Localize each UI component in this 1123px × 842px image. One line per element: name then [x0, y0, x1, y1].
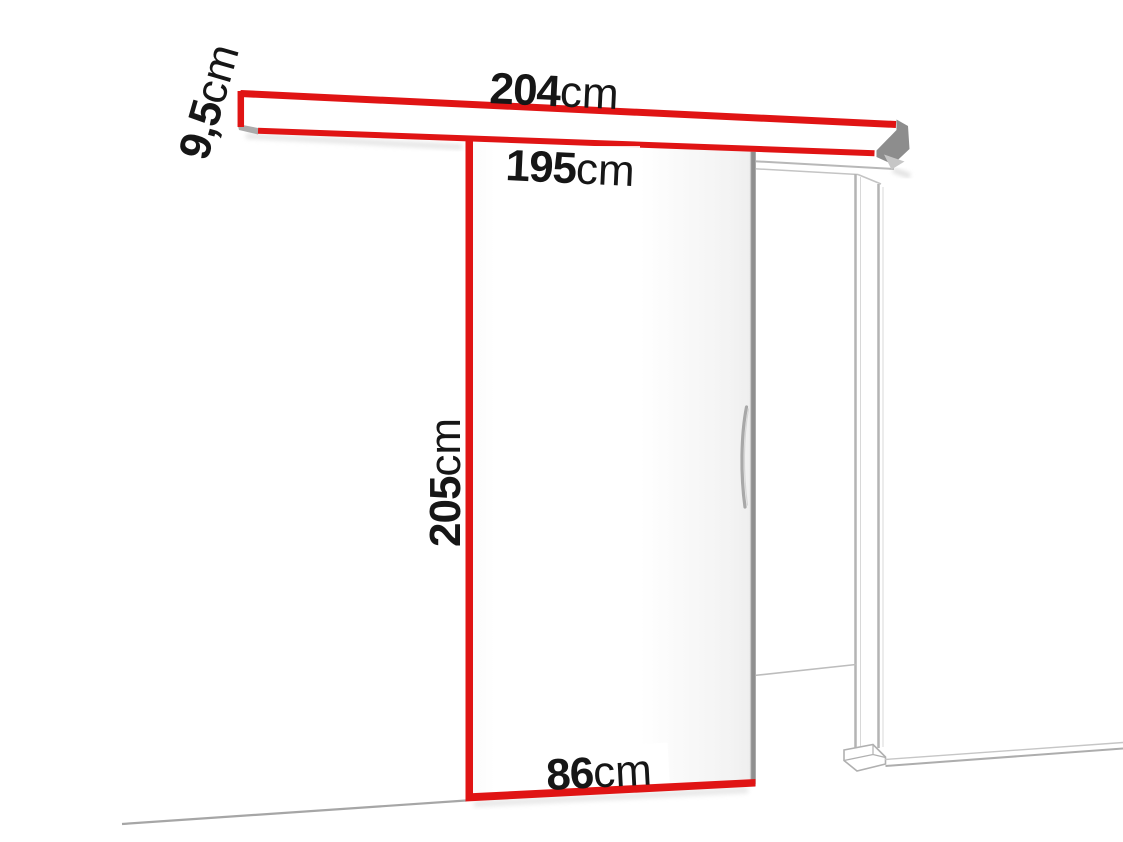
door-leaf: [466, 131, 757, 802]
frame-miter-joint-line: [858, 175, 881, 185]
floor-line: [122, 801, 466, 825]
door-height-value: 205: [421, 476, 470, 547]
sliding-door-diagram: 204cm 9,5cm 195cm 205cm 86cm: [0, 0, 1123, 842]
diagram-canvas: 204cm 9,5cm 195cm 205cm 86cm: [0, 0, 1123, 842]
opening-width-value: 195: [505, 141, 578, 193]
label-opening-width: 195cm: [505, 141, 636, 196]
label-rail-height: 9,5cm: [170, 39, 249, 165]
door-width-value: 86: [545, 749, 594, 800]
label-door-width: 86cm: [545, 746, 653, 800]
rail-length-value: 204: [489, 64, 563, 116]
door-frame: [750, 161, 1123, 771]
rail-end-shadow: [893, 170, 910, 176]
frame-lintel-inner-line: [750, 169, 858, 175]
label-door-height: 205cm: [421, 418, 470, 547]
frame-plinth: [844, 745, 886, 772]
frame-lintel-top-line: [750, 161, 894, 169]
wall-floor-line-behind: [754, 665, 856, 676]
door-panel: [466, 131, 756, 801]
rail-length-unit: cm: [559, 67, 620, 119]
label-rail-length: 204cm: [489, 64, 620, 119]
door-height-unit: cm: [421, 418, 470, 477]
door-width-unit: cm: [592, 746, 653, 798]
opening-width-unit: cm: [575, 144, 636, 196]
